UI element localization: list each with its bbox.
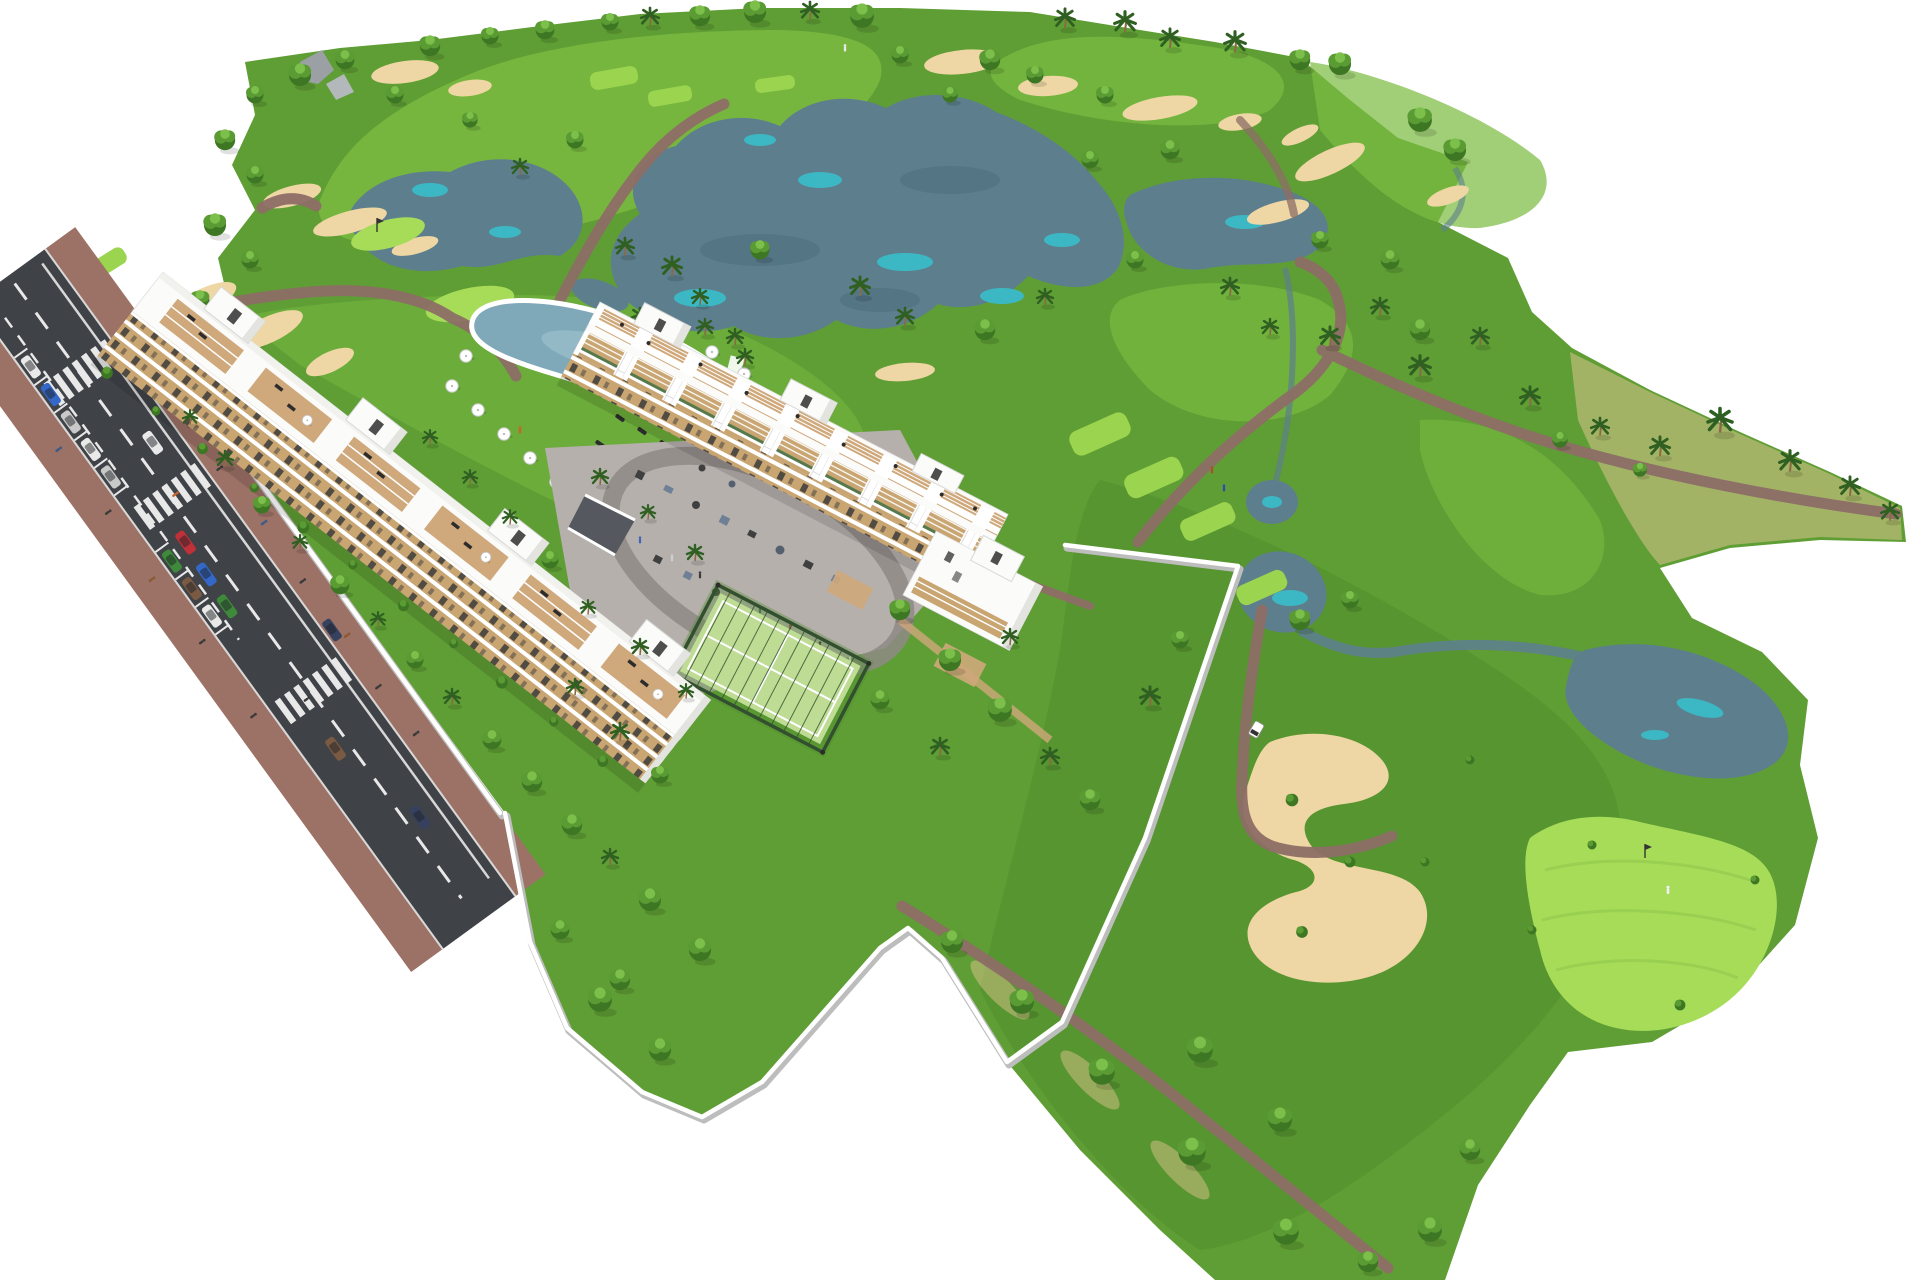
golfer [1666, 886, 1669, 895]
aerial-render [0, 0, 1920, 1280]
cyclist [1223, 484, 1226, 491]
cyclist [1211, 466, 1214, 473]
